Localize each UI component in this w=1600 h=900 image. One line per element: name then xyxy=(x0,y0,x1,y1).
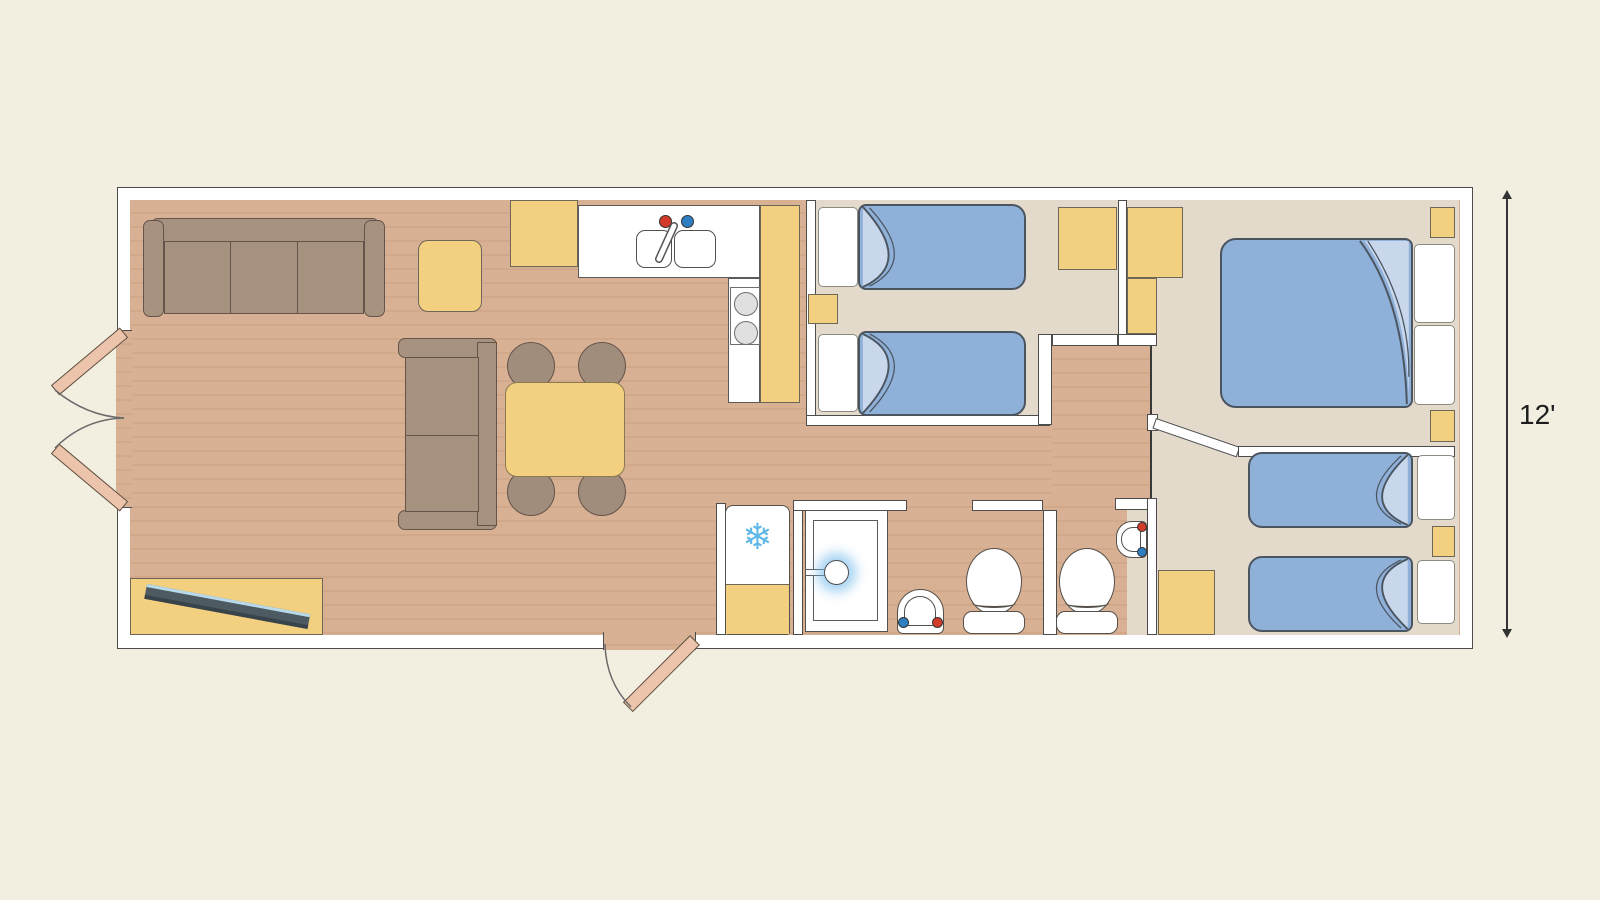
snowflake-icon: ❄ xyxy=(726,516,789,558)
loveseat-back xyxy=(477,342,497,526)
wc2-hot-tap-icon xyxy=(1137,522,1147,532)
bed2-pillow xyxy=(818,334,858,412)
sink-basin-right xyxy=(674,230,716,268)
bedroom1-nightstand xyxy=(808,294,838,324)
bed1-duvet-fold-icon xyxy=(860,206,1024,288)
wall-wc2-right xyxy=(1147,498,1157,635)
fridge-lower-cabinet xyxy=(726,584,789,634)
wall-bedroom1-bottom xyxy=(806,415,1050,426)
toilet2-base xyxy=(1056,611,1118,634)
sofa-arm-right xyxy=(364,220,385,317)
toilet1-base xyxy=(963,611,1025,634)
bed1-pillow xyxy=(818,207,858,287)
sofa-back xyxy=(150,218,380,242)
bedroom3-nightstand xyxy=(1432,526,1455,557)
dimension-label: 12' xyxy=(1519,399,1579,431)
wall-shower-left xyxy=(793,500,803,635)
wc2-cold-tap-icon xyxy=(1137,547,1147,557)
toilet1-seat-line xyxy=(972,598,1016,608)
master-bed xyxy=(1220,238,1413,408)
bed2-duvet-fold-icon xyxy=(860,333,1024,414)
loveseat-cushions xyxy=(405,357,479,512)
kitchen-cabinet-left xyxy=(510,200,578,267)
kitchen-cabinet-tall xyxy=(760,205,800,403)
french-door-opening xyxy=(116,330,132,508)
fridge: ❄ xyxy=(725,505,790,635)
sofa-arm-left xyxy=(143,220,164,317)
bed1 xyxy=(858,204,1026,290)
dimension-arrowhead-bottom xyxy=(1502,629,1512,638)
master-pillow-2 xyxy=(1414,325,1455,405)
master-wardrobe-lower xyxy=(1127,278,1157,334)
basin-cold-tap-icon xyxy=(898,617,909,628)
hot-tap-icon xyxy=(659,215,672,228)
wall-notch-top xyxy=(1052,334,1118,346)
basin-hot-tap-icon xyxy=(932,617,943,628)
bedroom3-cabinet xyxy=(1158,570,1215,635)
hob xyxy=(730,287,760,345)
bed4-duvet-fold-icon xyxy=(1250,558,1411,630)
wall-notch-left xyxy=(1038,334,1052,425)
wall-bathroom-top-right xyxy=(972,500,1043,511)
master-shelf-top xyxy=(1430,207,1455,238)
sofa-cushions xyxy=(164,241,364,314)
sink-basin-left xyxy=(636,230,672,268)
master-pillow-1 xyxy=(1414,244,1455,323)
corridor-notch-floor xyxy=(1052,346,1152,498)
bed2 xyxy=(858,331,1026,416)
bed3-pillow xyxy=(1417,455,1455,520)
floorplan-canvas: ❄ 12' xyxy=(0,0,1600,900)
bed4-pillow xyxy=(1417,560,1455,624)
wall-wc-divider xyxy=(1043,510,1057,635)
shower-head-icon xyxy=(824,560,849,585)
hob-burner-2 xyxy=(734,321,758,345)
bed3-duvet-fold-icon xyxy=(1250,454,1411,526)
wall-master-left xyxy=(1118,200,1127,346)
cold-tap-icon xyxy=(681,215,694,228)
master-shelf-mid xyxy=(1430,410,1455,442)
master-bed-duvet-fold-icon xyxy=(1222,240,1411,406)
bed3 xyxy=(1248,452,1413,528)
wall-master-left-foot xyxy=(1118,334,1157,346)
hob-burner-1 xyxy=(734,292,758,316)
toilet2-seat-line xyxy=(1065,598,1109,608)
dimension-line xyxy=(1506,193,1508,635)
side-table xyxy=(418,240,482,312)
master-wardrobe-upper xyxy=(1127,207,1183,278)
dimension-arrowhead-top xyxy=(1502,190,1512,199)
bedroom1-wardrobe xyxy=(1058,207,1117,270)
dining-table xyxy=(505,382,625,477)
bed4 xyxy=(1248,556,1413,632)
